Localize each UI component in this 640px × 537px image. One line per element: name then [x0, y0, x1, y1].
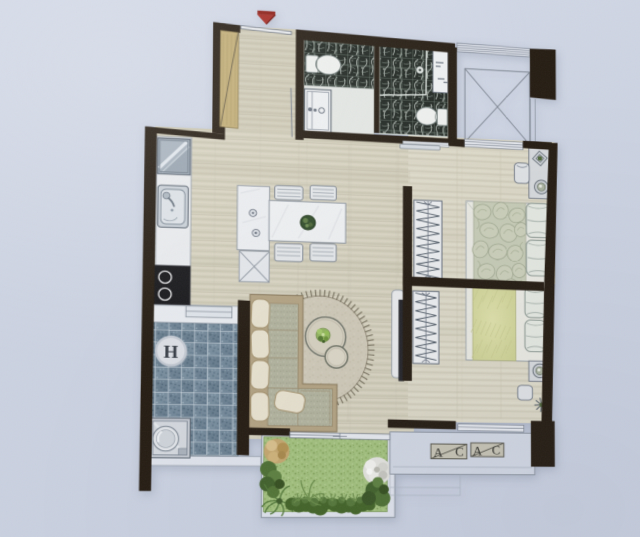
svg-text:A: A	[473, 444, 483, 458]
svg-text:H: H	[163, 342, 179, 362]
svg-text:A: A	[434, 445, 444, 459]
svg-text:C: C	[492, 443, 501, 457]
svg-text:C: C	[455, 444, 464, 458]
